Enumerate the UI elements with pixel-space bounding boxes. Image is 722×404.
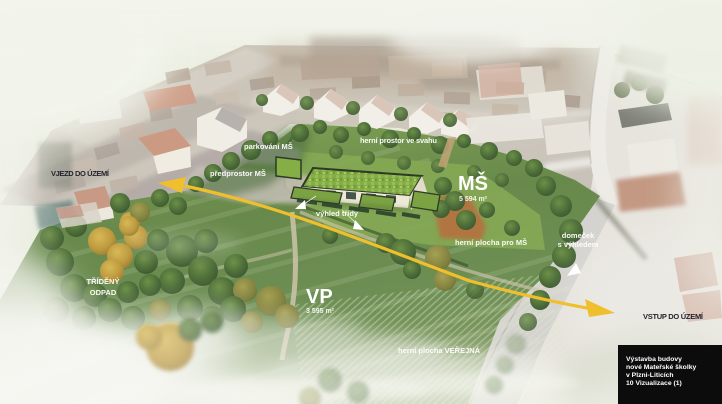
svg-text:10 Vizualizace (1): 10 Vizualizace (1) (626, 380, 682, 387)
svg-text:v Plzni-Liticích: v Plzni-Liticích (626, 372, 674, 379)
svg-text:výhled třídy: výhled třídy (316, 209, 359, 218)
svg-text:5 594 m²: 5 594 m² (459, 196, 488, 203)
svg-text:VP: VP (306, 286, 333, 308)
svg-text:parkování MŠ: parkování MŠ (244, 142, 293, 151)
svg-text:VSTUP DO ÚZEMÍ: VSTUP DO ÚZEMÍ (643, 312, 704, 321)
svg-text:herní plocha VEŘEJNÁ: herní plocha VEŘEJNÁ (398, 346, 481, 355)
svg-text:MŠ: MŠ (458, 171, 488, 195)
svg-text:ODPAD: ODPAD (90, 288, 117, 297)
svg-text:předprostor MŠ: předprostor MŠ (210, 169, 266, 178)
svg-text:herní plocha pro MŠ: herní plocha pro MŠ (455, 238, 527, 247)
svg-text:TŘÍDĚNÝ: TŘÍDĚNÝ (87, 277, 120, 286)
svg-text:3 595 m²: 3 595 m² (306, 308, 335, 315)
svg-text:Výstavba budovy: Výstavba budovy (626, 356, 682, 363)
svg-text:domeček: domeček (562, 231, 595, 240)
svg-text:herní prostor ve svahu: herní prostor ve svahu (360, 136, 437, 145)
svg-text:nové Mateřské školky: nové Mateřské školky (626, 364, 696, 371)
svg-text:VJEZD DO ÚZEMÍ: VJEZD DO ÚZEMÍ (51, 169, 110, 178)
svg-text:s výhledem: s výhledem (558, 240, 599, 249)
